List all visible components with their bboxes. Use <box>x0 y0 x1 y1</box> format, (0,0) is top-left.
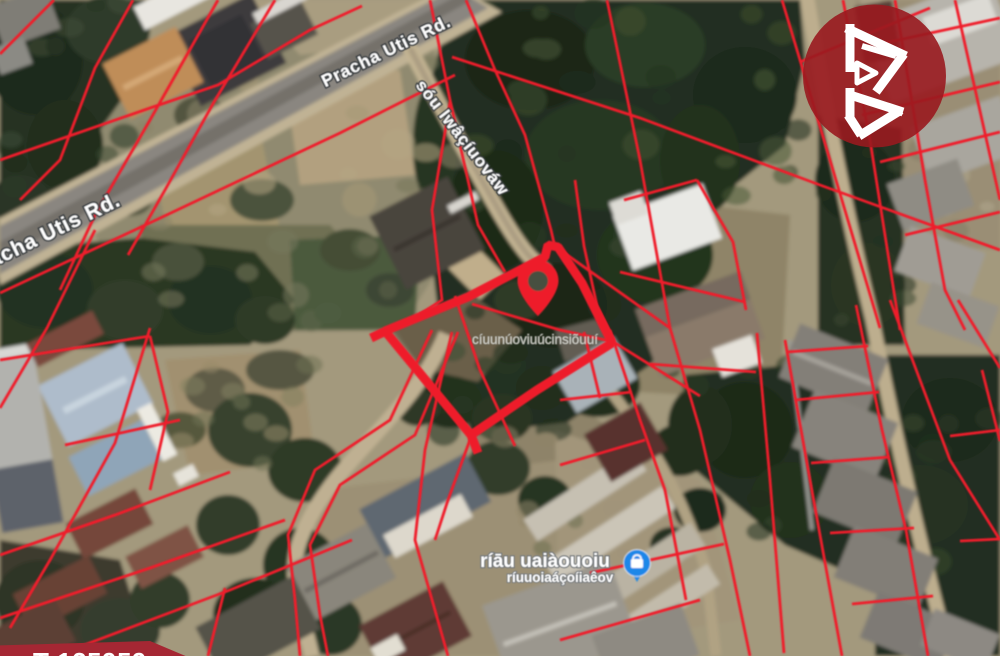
svg-text:ríuuoiaáçoíiaêov: ríuuoiaáçoíiaêov <box>507 570 614 585</box>
svg-text:cíuunúoviuúcinsiõuuí: cíuunúoviuúcinsiõuuí <box>472 332 598 347</box>
svg-text:T-125959: T-125959 <box>33 647 147 656</box>
svg-text:ríāu uaiàouoiu: ríāu uaiàouoiu <box>480 551 610 572</box>
